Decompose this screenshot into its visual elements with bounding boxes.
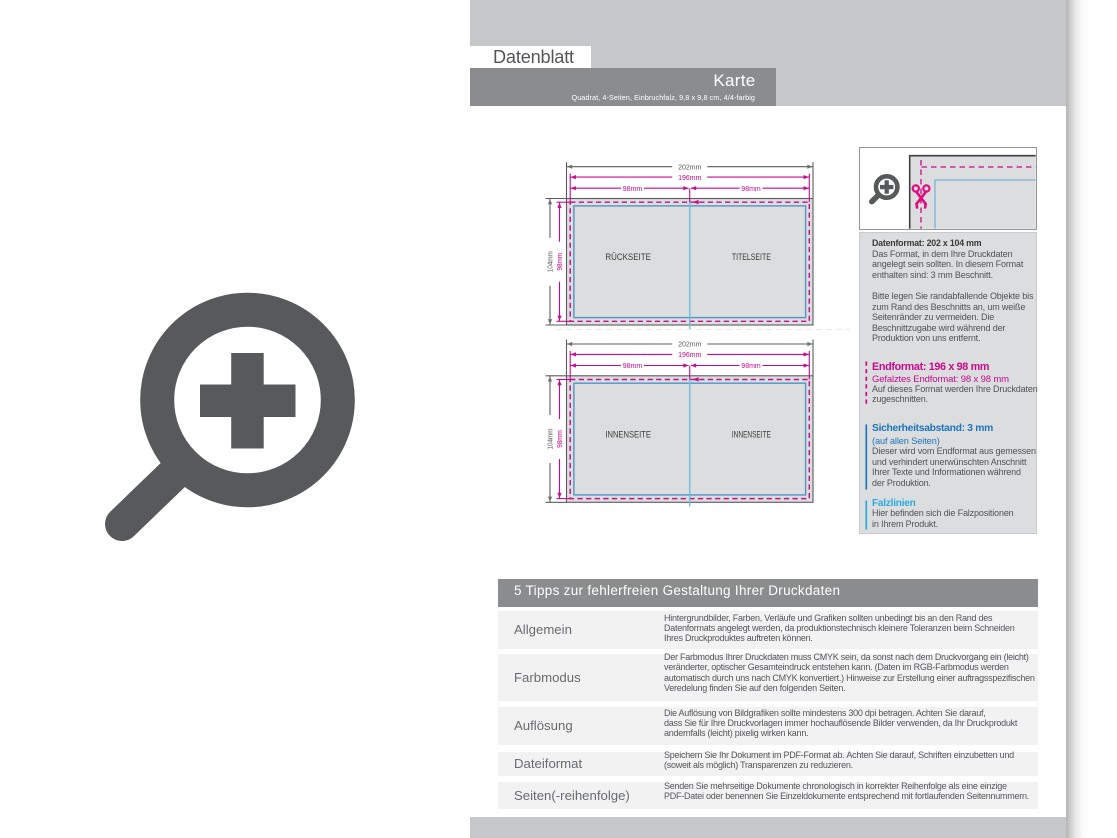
svg-text:98mm: 98mm <box>741 186 761 193</box>
svg-text:INNENSEITE: INNENSEITE <box>732 429 771 440</box>
svg-text:98mm: 98mm <box>741 363 761 370</box>
svg-text:98mm: 98mm <box>557 253 564 271</box>
svg-text:RÜCKSEITE: RÜCKSEITE <box>605 252 651 263</box>
svg-text:202mm: 202mm <box>678 164 702 171</box>
svg-text:TITELSEITE: TITELSEITE <box>732 252 771 263</box>
svg-text:202mm: 202mm <box>678 342 702 349</box>
svg-text:INNENSEITE: INNENSEITE <box>605 429 651 440</box>
svg-text:98mm: 98mm <box>623 186 643 193</box>
svg-text:104mm: 104mm <box>548 428 555 449</box>
svg-text:196mm: 196mm <box>678 352 702 359</box>
svg-text:98mm: 98mm <box>623 363 643 370</box>
svg-text:104mm: 104mm <box>548 251 555 272</box>
svg-text:98mm: 98mm <box>557 430 564 448</box>
svg-text:196mm: 196mm <box>678 175 702 182</box>
